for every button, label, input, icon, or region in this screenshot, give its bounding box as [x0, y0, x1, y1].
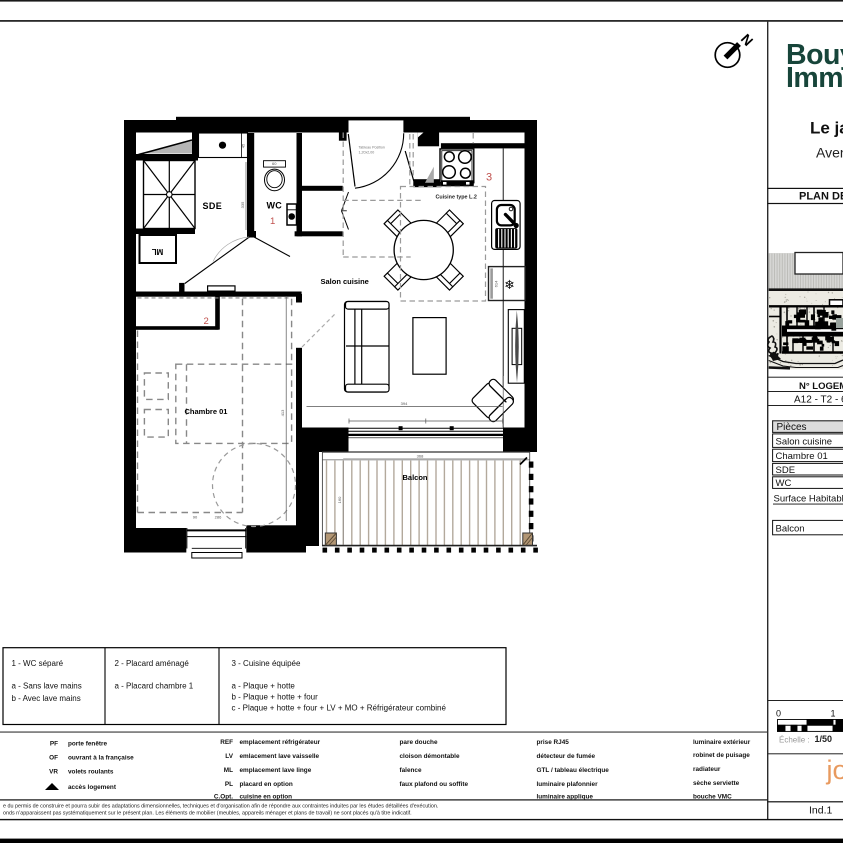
svg-text:ouvrant à la française: ouvrant à la française: [68, 755, 134, 762]
svg-text:e du permis de construire et p: e du permis de construire et pourra subi…: [3, 804, 438, 810]
svg-text:PL: PL: [225, 781, 233, 788]
svg-text:PLAN DE VENTE: PLAN DE VENTE: [799, 191, 843, 203]
svg-text:placard en option: placard en option: [240, 781, 293, 788]
svg-text:faux plafond ou soffite: faux plafond ou soffite: [400, 781, 469, 788]
svg-text:Le jardin: Le jardin: [810, 119, 843, 138]
svg-text:90: 90: [193, 515, 198, 520]
svg-text:faïence: faïence: [400, 767, 422, 774]
svg-text:0: 0: [776, 709, 781, 719]
svg-text:ML: ML: [152, 247, 164, 256]
svg-text:Ind.1: Ind.1: [809, 805, 833, 817]
svg-text:1/50: 1/50: [815, 734, 833, 744]
svg-text:a - Placard chambre 1: a - Placard chambre 1: [115, 682, 194, 691]
svg-text:C.Opt.: C.Opt.: [214, 794, 233, 801]
svg-text:Immobilier: Immobilier: [786, 62, 843, 94]
svg-text:1: 1: [831, 709, 836, 719]
svg-text:Chambre 01: Chambre 01: [185, 407, 228, 416]
svg-text:45: 45: [241, 143, 246, 148]
svg-text:Échelle :: Échelle :: [779, 736, 810, 745]
svg-text:OF: OF: [49, 755, 58, 762]
svg-text:cloison démontable: cloison démontable: [400, 753, 460, 760]
svg-text:Salon cuisine: Salon cuisine: [321, 277, 369, 286]
svg-text:bouche VMC: bouche VMC: [693, 794, 732, 801]
svg-text:N° LOGEMENT: N° LOGEMENT: [799, 381, 843, 392]
svg-text:160: 160: [337, 496, 342, 503]
svg-text:335: 335: [240, 201, 245, 208]
svg-text:accès logement: accès logement: [68, 784, 117, 791]
svg-text:GTL / tableau électrique: GTL / tableau électrique: [537, 767, 610, 774]
svg-text:jol: jol: [826, 755, 843, 785]
svg-text:b - Plaque + hotte + four: b - Plaque + hotte + four: [232, 693, 319, 702]
svg-text:394: 394: [401, 401, 408, 406]
svg-text:3: 3: [486, 172, 492, 184]
svg-text:A12 - T2 - 62: A12 - T2 - 62: [794, 395, 843, 406]
svg-text:Balcon: Balcon: [403, 473, 428, 482]
svg-text:prise RJ45: prise RJ45: [537, 739, 570, 746]
svg-text:cuisine en option: cuisine en option: [240, 794, 293, 801]
svg-text:luminaire extérieur: luminaire extérieur: [693, 739, 751, 746]
svg-text:emplacement lave linge: emplacement lave linge: [240, 767, 312, 774]
svg-text:a - Plaque + hotte: a - Plaque + hotte: [232, 682, 296, 691]
svg-text:3 - Cuisine équipée: 3 - Cuisine équipée: [232, 659, 301, 668]
svg-text:2: 2: [204, 316, 209, 327]
svg-text:porte fenêtre: porte fenêtre: [68, 741, 108, 748]
svg-text:emplacement réfrigérateur: emplacement réfrigérateur: [240, 739, 321, 746]
svg-text:Pièces: Pièces: [777, 422, 807, 433]
svg-text:radiateur: radiateur: [693, 766, 721, 773]
svg-text:1,20x2,00: 1,20x2,00: [359, 151, 375, 155]
svg-text:détecteur de fumée: détecteur de fumée: [537, 753, 596, 760]
svg-text:b - Avec lave mains: b - Avec lave mains: [12, 694, 81, 703]
svg-text:a - Sans lave mains: a - Sans lave mains: [12, 682, 82, 691]
svg-text:SDE: SDE: [203, 201, 223, 211]
svg-text:60: 60: [272, 161, 277, 166]
svg-text:emlacement lave vaisselle: emlacement lave vaisselle: [240, 753, 320, 760]
svg-text:368: 368: [417, 454, 424, 459]
svg-text:SDE: SDE: [776, 465, 796, 476]
svg-text:Salon cuisine: Salon cuisine: [776, 437, 833, 448]
svg-text:sèche serviette: sèche serviette: [693, 780, 740, 787]
svg-text:Balcon: Balcon: [776, 523, 805, 534]
svg-text:1 - WC séparé: 1 - WC séparé: [12, 659, 64, 668]
svg-text:Avenue d: Avenue d: [816, 145, 843, 161]
svg-text:2 - Placard aménagé: 2 - Placard aménagé: [115, 659, 190, 668]
svg-text:❄: ❄: [504, 278, 514, 292]
svg-text:WC: WC: [267, 201, 283, 211]
svg-text:onds n'apparaissent pas systém: onds n'apparaissent pas systématiquement…: [3, 811, 412, 817]
svg-text:WC: WC: [776, 478, 792, 489]
svg-text:Cuisine type L.2: Cuisine type L.2: [436, 195, 477, 201]
svg-text:Chambre 01: Chambre 01: [776, 451, 828, 462]
svg-text:ML: ML: [224, 767, 233, 774]
svg-text:614: 614: [494, 280, 499, 287]
svg-text:robinet de puisage: robinet de puisage: [693, 752, 750, 759]
svg-text:luminaire plafonnier: luminaire plafonnier: [537, 781, 599, 788]
svg-text:volets roulants: volets roulants: [68, 769, 114, 776]
svg-text:PF: PF: [50, 741, 58, 748]
svg-text:pare douche: pare douche: [400, 739, 438, 746]
svg-text:Tableau Position: Tableau Position: [359, 146, 385, 150]
svg-text:Surface Habitable: Surface Habitable: [774, 494, 843, 505]
svg-text:286: 286: [215, 515, 222, 520]
svg-text:413: 413: [280, 409, 285, 416]
svg-text:c - Plaque + hotte + four + LV: c - Plaque + hotte + four + LV + MO + Ré…: [232, 704, 447, 713]
svg-text:luminaire applique: luminaire applique: [537, 794, 594, 801]
svg-text:VR: VR: [49, 769, 58, 776]
svg-text:1: 1: [270, 216, 275, 227]
svg-text:REF: REF: [220, 739, 233, 746]
svg-text:LV: LV: [225, 753, 233, 760]
